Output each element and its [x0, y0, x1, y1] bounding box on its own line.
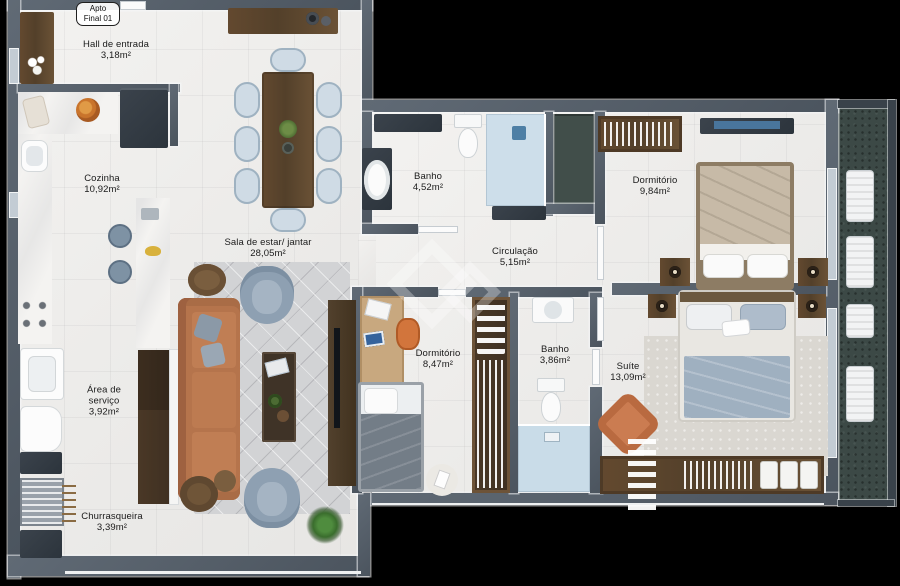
dining-chair [316, 168, 342, 204]
room-label-cozinha: Cozinha10,92m² [84, 174, 120, 196]
coffee-table-plate [268, 394, 282, 408]
room-label-suite: Suíte13,09m² [610, 362, 646, 384]
table-vase [282, 142, 294, 154]
dining-chair [234, 168, 260, 204]
room-label-area-servico: Área de serviço3,92m² [79, 386, 129, 419]
kitchen-sink-bowl [26, 146, 43, 166]
floor-passage [358, 234, 376, 287]
closet-dorm2-clothes [477, 360, 505, 488]
balcony-rail [838, 500, 894, 506]
bath2-toilet-bowl [541, 392, 561, 422]
room-label-circulacao: Circulação5,15m² [492, 247, 538, 269]
bath2-toilet [537, 378, 565, 392]
window-sill [372, 503, 824, 505]
room-label-sala: Sala de estar/ jantar28,05m² [224, 238, 311, 260]
side-table [188, 264, 226, 296]
balcony-rail [838, 100, 894, 108]
armchair-cushion [257, 482, 287, 516]
wall [510, 293, 518, 493]
suite-wardrobe-clothes [684, 461, 754, 489]
suite-wardrobe-drawer [780, 461, 798, 489]
decor-bowl [321, 16, 331, 26]
door-banho-social [418, 226, 458, 233]
room-label-dormitorio-2: Dormitório8,47m² [416, 349, 461, 371]
bath1-toilet-bowl [458, 128, 478, 158]
floor-plan: Apto Final 01 Hall de entrada3,18m² Cozi… [0, 0, 900, 586]
barbecue-counter [20, 452, 62, 474]
suite-wardrobe-drawer [760, 461, 778, 489]
wall [170, 84, 178, 146]
bar-stool [108, 260, 132, 284]
lamp [656, 300, 668, 312]
tv-panel [328, 300, 356, 486]
half-wall [170, 350, 178, 504]
lounge-chair [846, 304, 874, 338]
sofa-pillow [200, 342, 226, 368]
room-label-banho-social: Banho4,52m² [413, 172, 443, 194]
sofa-cushion [192, 372, 236, 428]
kitchen-island [136, 198, 170, 348]
bed-dorm1-pillow [747, 254, 788, 278]
side-table-small [214, 470, 236, 492]
bananas [145, 246, 161, 256]
washer-door [28, 356, 56, 392]
living-plant [306, 506, 344, 544]
bath1-vanity [374, 114, 442, 132]
dining-chair [270, 48, 306, 72]
refrigerator [120, 88, 168, 148]
side-table [180, 476, 218, 512]
room-label-hall: Hall de entrada3,18m² [83, 40, 149, 62]
bed-suite-blanket [684, 356, 790, 418]
dining-chair [234, 82, 260, 118]
cooktop [18, 296, 52, 334]
room-label-churrasqueira: Churrasqueira3,39m² [81, 512, 143, 534]
dining-chair [270, 208, 306, 232]
suite-wardrobe-shoes [628, 439, 656, 511]
unit-badge: Apto Final 01 [76, 2, 120, 26]
bed-dorm1-blanket [700, 166, 790, 246]
tv-screen [334, 328, 340, 428]
laundry-tub [20, 406, 62, 452]
bed-dorm1-pillow [703, 254, 744, 278]
room-label-banho-suite: Banho3,86m² [540, 345, 570, 367]
lounge-chair [846, 236, 874, 288]
bath2-shower-head [544, 432, 560, 442]
entry-door [120, 1, 146, 10]
bed-suite-headboard [680, 292, 794, 302]
unit-badge-line1: Apto [77, 4, 119, 14]
grill [20, 478, 64, 526]
window [827, 308, 837, 458]
suite-wardrobe-drawer [800, 461, 818, 489]
table-plant [279, 120, 297, 138]
door-suite [597, 297, 604, 341]
bed-dorm2-pillow [364, 388, 398, 414]
window [827, 168, 837, 280]
bed-suite-cushion [721, 319, 751, 338]
wall [358, 493, 370, 576]
window [9, 48, 19, 84]
bath1-shower-head [512, 126, 526, 140]
wall [545, 112, 553, 216]
armchair-cushion [252, 280, 282, 314]
door-banho-suite [592, 349, 600, 385]
shower-box [553, 114, 595, 206]
hall-flowers [24, 52, 48, 78]
bath2-sink-bowl [544, 301, 562, 319]
dining-chair [316, 126, 342, 162]
skewers [62, 482, 76, 522]
decor-bowl [306, 12, 319, 25]
lounge-chair [846, 366, 874, 422]
wall [362, 100, 838, 112]
barbecue-cabinet [20, 530, 62, 558]
fruit-bowl [76, 98, 100, 122]
wardrobe-dorm1-clothes [604, 122, 676, 146]
lamp [807, 266, 819, 278]
unit-badge-line2: Final 01 [77, 14, 119, 24]
lamp [669, 266, 681, 278]
balcony-rail [888, 100, 896, 506]
room-label-dormitorio-1: Dormitório9,84m² [633, 176, 678, 198]
dining-chair [234, 126, 260, 162]
door-dormitorio-1 [597, 226, 604, 280]
tv-screen-dorm1 [714, 121, 780, 129]
coffee-table-plate [277, 410, 289, 422]
desk-chair [396, 318, 420, 350]
bath1-sink [364, 160, 390, 200]
dining-chair [316, 82, 342, 118]
notebook [363, 331, 385, 348]
window-sill [65, 571, 361, 574]
bath1-bench [492, 206, 546, 220]
lounge-chair [846, 170, 874, 222]
dining-table [262, 72, 314, 208]
bed-dorm2-blanket [361, 414, 421, 489]
lamp [806, 300, 818, 312]
island-tray [141, 208, 159, 220]
bar-stool [108, 224, 132, 248]
wall [362, 0, 372, 112]
island-cabinet [138, 350, 170, 504]
wall [362, 224, 418, 234]
bath1-toilet [454, 114, 482, 128]
